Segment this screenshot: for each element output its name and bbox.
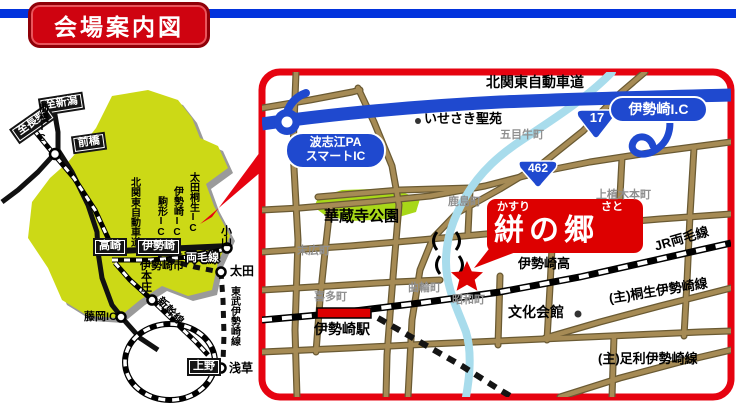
detail-isesaki-ic-label: 伊勢崎I.C: [610, 97, 707, 122]
bunka-kaikan-label: 文化会館: [508, 305, 564, 320]
kezoji-park-label: 華蔵寺公園: [324, 209, 399, 225]
komagata-ic-label: 駒形IC: [155, 196, 166, 238]
venue-furigana-kasuri: かすり: [497, 202, 530, 214]
oyama-label: 小山: [219, 225, 231, 247]
detail-kitakanto-expwy-label: 北関東自動車道: [486, 75, 584, 90]
venue-guide-map: 会場案内図: [0, 0, 736, 412]
isesaki-high-label: 伊勢崎高: [518, 257, 570, 271]
honjo-label: 本庄: [139, 270, 151, 292]
maebashi-ic-circle: [50, 149, 60, 159]
kamiueki-hon-cho-label: 上植木本町: [596, 190, 651, 202]
ota-station-circle: [217, 268, 226, 277]
ota-kiryu-ic-label: 太田桐生IC: [187, 172, 198, 234]
asakusa-label: 浅草: [229, 362, 253, 375]
ueno-label: 上野: [189, 360, 219, 374]
isesaki-station-label: 伊勢崎駅: [314, 322, 370, 337]
seien-dot: [415, 118, 421, 124]
takasaki-label: 高崎: [95, 240, 125, 254]
kuruwa-cho-label: 曲輪町: [408, 283, 441, 295]
venue-name: 絣の郷: [494, 215, 599, 247]
hashie-pa-label-1: 波志江PA: [286, 136, 385, 149]
tobu-isesaki-line-label: 東武伊勢崎線: [228, 286, 239, 346]
ashikaga-isesaki-line-label: (主)足利伊勢崎線: [598, 352, 698, 366]
suehiro-cho-label: 末広町: [297, 246, 330, 258]
maebashi-ic-label: 前橋IC: [36, 102, 47, 144]
isesaki-ic-label: 伊勢崎IC: [171, 186, 182, 238]
hashie-pa-label-2: スマートIC: [286, 150, 385, 163]
route17-number: 17: [580, 111, 614, 125]
isesaki-label: 伊勢崎: [138, 240, 179, 254]
bunka-kaikan-dot: [575, 311, 582, 318]
isesaki-seien-label: いせさき聖苑: [424, 112, 502, 126]
ota-label: 太田: [230, 265, 254, 278]
fujioka-ic-circle: [117, 313, 126, 322]
route462-number: 462: [520, 162, 556, 175]
showa-cho-label: 昭和町: [452, 295, 485, 307]
ryomo-line-label: 両毛線: [186, 253, 219, 265]
fujioka-ic-label: 藤岡IC: [84, 312, 117, 324]
kita-cho-label: 喜多町: [314, 292, 347, 304]
kitakanto-expwy-label: 北関東自動車道: [128, 177, 139, 247]
kashima-cho-label: 鹿島町: [448, 197, 481, 209]
isesaki-station-symbol: [317, 308, 371, 318]
gomeushi-cho-label: 五目牛町: [500, 130, 544, 142]
venue-furigana-sato: さと: [601, 202, 623, 214]
